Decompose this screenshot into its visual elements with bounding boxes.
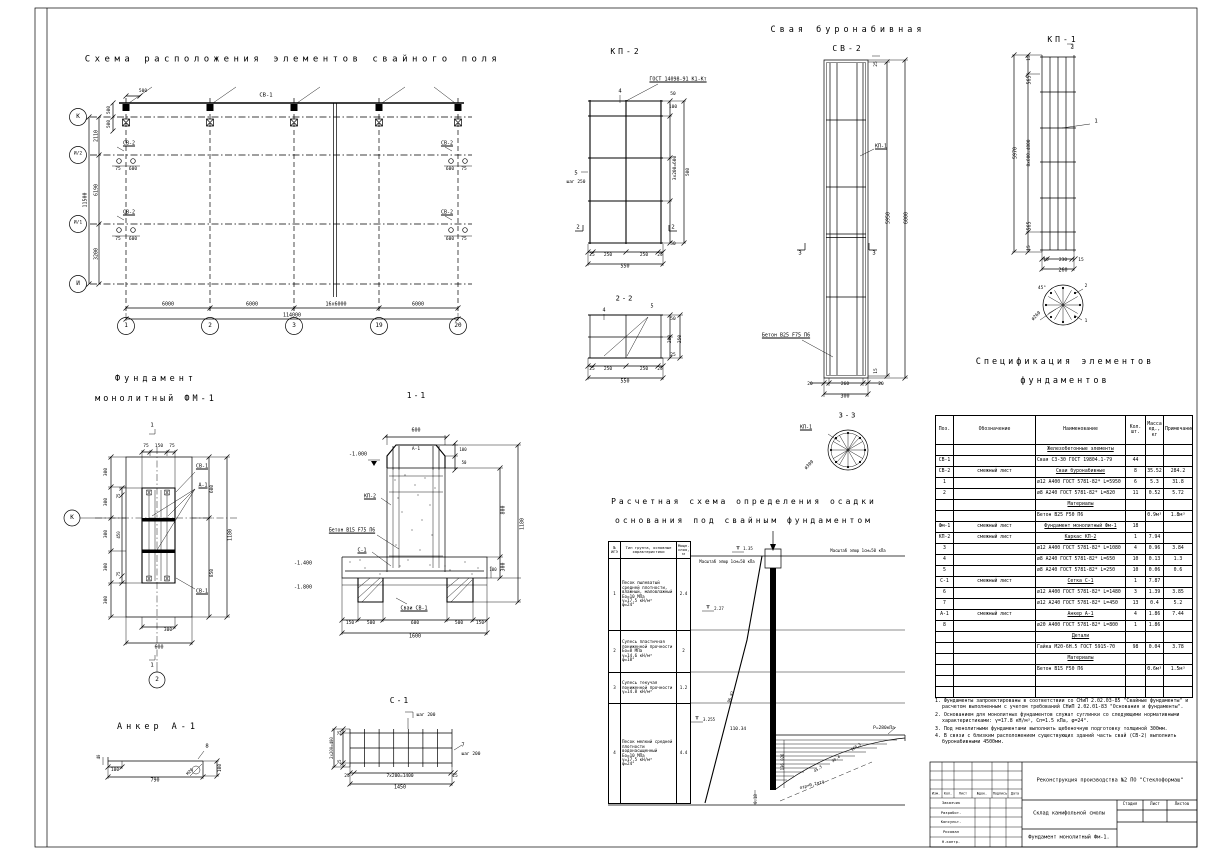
table-cell: 3.78 [1164,643,1193,654]
table-cell [1126,500,1146,511]
table-cell [1164,500,1193,511]
table-cell: 1 [936,478,954,489]
table: Поз.ОбозначениеНаименованиеКол. шт.Масса… [935,415,1193,698]
table-cell [954,632,1036,643]
table-cell [936,632,954,643]
table-cell: 5.2 [1164,599,1193,610]
table-cell: 7 [936,599,954,610]
table-cell: 1 [1126,533,1146,544]
table-cell: Наименование [1036,416,1126,445]
table-cell [954,500,1036,511]
table-cell [936,687,954,698]
table-cell: 11 [1126,489,1146,500]
table-cell: ø20 А400 ГОСТ 5781-82* L=800 [1036,621,1126,632]
table-cell: Свая С3-30 ГОСТ 19804.1-79 [1036,456,1126,467]
table-cell: 18 [1126,522,1146,533]
table-cell [1126,676,1146,687]
table-cell [954,588,1036,599]
table-cell: Супесь текучая пониженной прочности γ=14… [621,673,677,704]
table-cell: С-1 [936,577,954,588]
table-cell [936,511,954,522]
table-cell [1146,456,1164,467]
specification-table: Поз.ОбозначениеНаименованиеКол. шт.Масса… [935,415,1192,698]
table-cell: ø8 А240 ГОСТ 5781-82* L=250 [1036,566,1126,577]
table-cell: 98 [1126,643,1146,654]
table-cell: 2.4 [677,559,691,631]
table-cell: 6 [936,588,954,599]
section-2-2 [586,313,684,381]
table: № ИГЭТип грунта, основные характеристики… [608,541,691,804]
table-cell: смежный лист [954,533,1036,544]
table-cell: Песок мелкий средней плотности водонасыщ… [621,704,677,804]
table-cell: 0.96 [1146,544,1164,555]
table-cell: 2 [677,631,691,673]
table-cell [936,643,954,654]
table-cell: 3 [1126,588,1146,599]
table-cell [1126,654,1146,665]
table-cell: 0.04 [1146,643,1164,654]
table-cell [1146,632,1164,643]
soil-layers-table: № ИГЭТип грунта, основные характеристики… [608,541,690,804]
note-item: 3. Под монолитными фундаментами выполнит… [935,726,1192,732]
table-cell: Песок пылеватый средней плотности, влажн… [621,559,677,631]
table-cell [1126,632,1146,643]
table-cell: 2 [609,631,621,673]
table-cell: Каркас КП-2 [1036,533,1126,544]
table-cell [954,599,1036,610]
table-cell: 1.86 [1146,621,1164,632]
table-cell: 4.4 [677,704,691,804]
table-cell: 1.86 [1146,610,1164,621]
table-cell: Поз. [936,416,954,445]
note-item: 2. Основанием для монолитных фундаментов… [935,712,1192,725]
table-cell [1146,654,1164,665]
table-cell: Сваи буронабивные [1036,467,1126,478]
table-cell [1164,456,1193,467]
table-cell: 7.94 [1146,533,1164,544]
table-cell: Фундамент монолитный Фм-1 [1036,522,1126,533]
table-cell: 31.8 [1164,478,1193,489]
table-cell [954,665,1036,676]
drawing-sheet: Схема расположения элементов свайного по… [0,0,1208,856]
table-cell [1164,632,1193,643]
table-cell [1036,676,1126,687]
table-cell [1146,522,1164,533]
table-cell [1164,621,1193,632]
table-cell: 0.6м³ [1146,665,1164,676]
table-cell: Примечание [1164,416,1193,445]
table-cell: ø8 А240 ГОСТ 5781-82* L=820 [1036,489,1126,500]
table-cell: 1.5м³ [1164,665,1193,676]
table-cell: 8 [1126,467,1146,478]
table-cell [954,555,1036,566]
table-cell: 6 [1126,478,1146,489]
table-cell: ø12 А240 ГОСТ 5781-82* L=450 [1036,599,1126,610]
table-cell [954,643,1036,654]
table-cell: ø8 А240 ГОСТ 5781-82* L=650 [1036,555,1126,566]
table-cell: Сетка С-1 [1036,577,1126,588]
table-cell: 3 [609,673,621,704]
general-notes: 1. Фундаменты запроектированы в соответс… [935,698,1192,747]
table-cell: смежный лист [954,577,1036,588]
table-cell: Кол. шт. [1126,416,1146,445]
table-cell: 4 [1126,544,1146,555]
table-cell: 35.52 [1146,467,1164,478]
table-cell: № ИГЭ [609,542,621,559]
table-cell: Тип грунта, основные характеристики [621,542,677,559]
table-cell: 8 [936,621,954,632]
table-cell: СВ-2 [936,467,954,478]
table-cell: 4 [1126,610,1146,621]
table-cell [1164,676,1193,687]
table-cell: Мощн. слоя, м [677,542,691,559]
table-cell: Материалы [1036,500,1126,511]
table-cell: 1 [609,559,621,631]
section-1-1 [340,435,522,636]
axis-circles [70,109,467,335]
table-cell: 13 [1126,599,1146,610]
table-cell: СВ-1 [936,456,954,467]
table-cell [936,665,954,676]
table-cell [936,654,954,665]
table-cell [1164,445,1193,456]
table-cell: Супесь пластичная пониженной прочности Е… [621,631,677,673]
table-cell: Бетон В15 F50 П6 [1036,665,1126,676]
table-cell: Гайка М20-6Н.5 ГОСТ 5915-70 [1036,643,1126,654]
table-cell [1164,577,1193,588]
mesh-s1 [332,712,463,787]
table-cell [936,500,954,511]
table-cell: смежный лист [954,610,1036,621]
table-cell: 10 [1126,555,1146,566]
table-cell: 0.9м³ [1146,511,1164,522]
table-cell [954,654,1036,665]
table-cell: 44 [1126,456,1146,467]
table-cell [954,456,1036,467]
table-cell: Фм-1 [936,522,954,533]
table-cell [954,621,1036,632]
table-cell [1146,500,1164,511]
table-cell: 0.13 [1146,555,1164,566]
table-cell: 0.52 [1146,489,1164,500]
table-cell: 5 [936,566,954,577]
table-cell: ø12 А400 ГОСТ 5781-82* L=1080 [1036,544,1126,555]
table-cell: 5.72 [1164,489,1193,500]
note-item: 4. В связи с близким расположением сущес… [935,733,1192,746]
sv2-pile [797,56,908,397]
table-cell [1146,676,1164,687]
table-cell [954,511,1036,522]
table-cell: КП-2 [936,533,954,544]
table-cell [954,478,1036,489]
note-item: 1. Фундаменты запроектированы в соответс… [935,698,1192,711]
table-cell: Материалы [1036,654,1126,665]
table-cell [1164,654,1193,665]
table-cell [1164,687,1193,698]
table-cell [954,489,1036,500]
table-cell: Железобетонные элементы [1036,445,1126,456]
table-cell: Обозначение [954,416,1036,445]
table-cell: 1 [1126,577,1146,588]
table-cell: 5.3 [1146,478,1164,489]
concrete-dots [350,475,479,575]
table-cell: 4 [936,555,954,566]
table-cell: Анкер А-1 [1036,610,1126,621]
table-cell [1126,445,1146,456]
table-cell [1164,533,1193,544]
table-cell [954,566,1036,577]
table-cell: смежный лист [954,467,1036,478]
anchor-a1 [103,751,220,780]
table-cell: 1.39 [1146,588,1164,599]
table-cell: 1.3 [1164,555,1193,566]
table-cell: 284.2 [1164,467,1193,478]
table-cell [1146,687,1164,698]
table-cell: 10 [1126,566,1146,577]
title-block-grid [930,762,1197,847]
table-cell [1126,511,1146,522]
table-cell: 3 [936,544,954,555]
pile-sv2-markers [112,147,472,236]
table-cell: ø12 А400 ГОСТ 5781-82* L=1480 [1036,588,1126,599]
fm1-plan [64,429,238,688]
table-cell: смежный лист [954,522,1036,533]
table-cell: 3.85 [1164,588,1193,599]
table-cell: 2 [936,489,954,500]
pile-field-plan [70,87,473,335]
table-cell: ø12 А400 ГОСТ 5781-82* L=5950 [1036,478,1126,489]
table-cell: 7.44 [1164,610,1193,621]
table-cell [1146,445,1164,456]
table-cell [954,445,1036,456]
table-cell: 1 [1126,621,1146,632]
table-cell [954,687,1036,698]
table-cell: 4 [609,704,621,804]
table-cell [954,676,1036,687]
table-cell: 0.4 [1146,599,1164,610]
section-3-3 [828,430,868,470]
table-cell: 0.6 [1164,566,1193,577]
table-cell [1126,687,1146,698]
table-cell [954,544,1036,555]
table-cell [1126,665,1146,676]
kp1-detail [1012,44,1091,325]
table-cell: 0.06 [1146,566,1164,577]
kp2-detail [575,84,687,267]
table-cell: 1.8м³ [1164,511,1193,522]
table-cell: Бетон В25 F50 П6 [1036,511,1126,522]
table-cell [936,445,954,456]
table-cell [1036,687,1126,698]
table-cell: 7.87 [1146,577,1164,588]
table-cell: Детали [1036,632,1126,643]
table-cell [1164,522,1193,533]
table-cell: 1.2 [677,673,691,704]
table-cell: Масса ед., кг [1146,416,1164,445]
table-cell [936,676,954,687]
table-cell: 3.84 [1164,544,1193,555]
table-cell: А-1 [936,610,954,621]
